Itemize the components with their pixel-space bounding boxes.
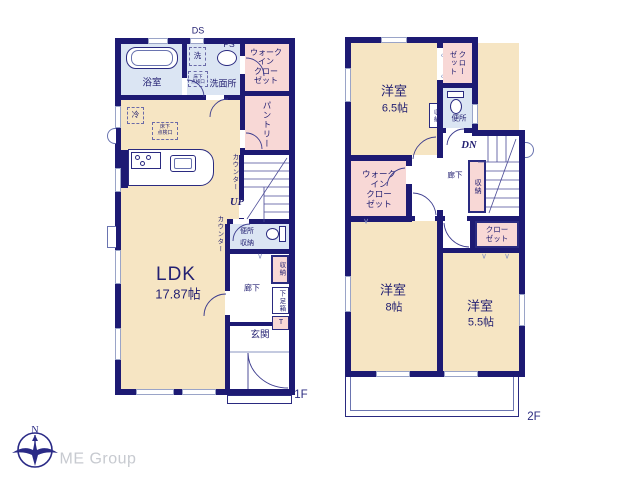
wall [351,155,412,161]
room-label-wic-2f: ウォーク イン クロー ゼット [362,169,396,209]
toilet-storage-label: 収納 [240,240,254,248]
wash-basin [217,50,237,66]
wall [245,91,289,96]
window [182,389,216,395]
room-label-sanitary: 洗面所 [209,79,236,90]
window [115,106,121,128]
stair-storage-label: 収納 [473,179,481,195]
stove-burner [135,155,140,160]
folding-door-mark: ∨ [257,252,263,261]
door-opening [406,166,412,184]
room-label-yoshitsu-65: 洋室 [381,83,407,98]
wall [470,221,475,248]
wall [115,38,295,44]
door-opening [415,216,435,221]
wall [440,83,472,88]
window [115,168,121,192]
door-opening [445,216,467,221]
room-label-ldk: LDK [156,264,196,286]
shoe-box-label: 下足箱 [277,290,285,313]
folding-door-mark: ‹ [441,51,444,60]
balcony-inner [350,377,514,411]
wall [406,155,412,221]
underfloor-hatch-label: 床下 点検口 [191,74,205,85]
toilet-bowl [450,99,462,114]
toilet-storage-label-2f: 収納 [431,109,438,123]
floor-tag-2f: 2F [527,411,540,425]
room-label-toilet-1f: 便所 [240,228,254,236]
ps-label: PS [223,39,234,49]
counter-label: カウンター [215,215,223,253]
wall [230,322,272,326]
door-opening [240,130,245,148]
compass-north-letter: N [31,425,38,436]
shoe-box-t-label: T [279,319,283,327]
wall [351,216,412,222]
stove-burner [146,155,151,160]
wall [345,37,478,43]
room-label-yoshitsu-55: 洋室 [467,298,493,313]
window [472,104,478,124]
hall-label-2f: 廊下 [448,172,463,181]
room-label-entrance: 玄関 [250,329,269,340]
room-label-closet-top: クロー ゼット [448,50,466,76]
floor-plan-canvas: 洗 床下 点検口 冷 床下 点検口 DS PS 浴室 洗面所 ウォーク イン ク… [0,0,640,480]
hall-2f [412,155,438,216]
washer-space: 洗 [189,47,206,66]
stairwell-1f [244,155,289,222]
room-label-pantry: パントリー [262,101,272,149]
logo-text: ME Group [60,451,137,470]
window [381,37,407,43]
storage-label-1f: 収納 [277,262,285,277]
door-opening [240,56,245,74]
room-size-ldk: 17.87帖 [155,286,201,301]
exterior-unit [107,226,116,248]
room-size-65: 6.5帖 [382,103,408,116]
exterior-unit [525,142,534,158]
stove-burner [140,161,145,166]
hall-label-1f: 廊下 [244,283,260,292]
window [136,389,174,395]
window [345,68,351,102]
room-label-closet-2f: クロー ゼット [486,226,509,244]
room-label-yoshitsu-8: 洋室 [380,282,406,297]
door-opening [446,128,464,133]
wall [289,38,295,395]
door-opening [206,95,224,100]
wall [121,150,128,188]
stairs-dn-label: DN [461,140,476,152]
room-size-8: 8帖 [385,302,402,315]
room-size-55: 5.5帖 [468,317,494,330]
fridge-label: 冷 [132,111,140,120]
door-opening [225,291,230,315]
washer-label: 洗 [194,52,202,61]
toilet-tank [447,91,464,98]
bathtub-inner [131,50,173,66]
folding-door-mark: ∨ [504,252,510,261]
fridge-space: 冷 [127,107,144,124]
floor-tag-1f: 1F [294,389,307,403]
room-label-toilet-2f: 便所 [452,115,467,124]
exterior-unit [107,128,116,144]
window [115,328,121,360]
underfloor-hatch: 床下 点検口 [152,122,178,140]
wall [121,95,245,100]
wall [472,130,525,136]
door-arcs-and-stairs [0,0,640,480]
underfloor-hatch: 床下 点検口 [188,71,208,87]
room-label-wic-1f: ウォーク イン クロー ゼット [250,48,282,86]
window [115,250,121,284]
door-opening [437,158,443,210]
wall [245,150,289,155]
folding-door-mark: ∨ [363,217,369,226]
counter-label: カウンター [230,153,238,191]
ds-duct [190,38,204,44]
room-label-bath: 浴室 [142,77,161,88]
window [519,294,525,326]
door-opening [233,219,249,224]
window [148,38,168,44]
folding-door-mark: ∨ [481,252,487,261]
kitchen-sink-inner [174,158,192,169]
door-opening [182,78,187,95]
entrance-porch [227,395,292,404]
toilet-tank [279,226,286,242]
window [345,276,351,312]
wall [519,130,525,377]
me-group-logo-icon: N [9,420,61,474]
underfloor-hatch-label: 床下 点検口 [157,125,172,137]
toilet-bowl [266,228,279,240]
stairs-up-label: UP [230,197,244,209]
folding-door-mark: ‹ [441,72,444,81]
ds-label: DS [192,26,205,37]
